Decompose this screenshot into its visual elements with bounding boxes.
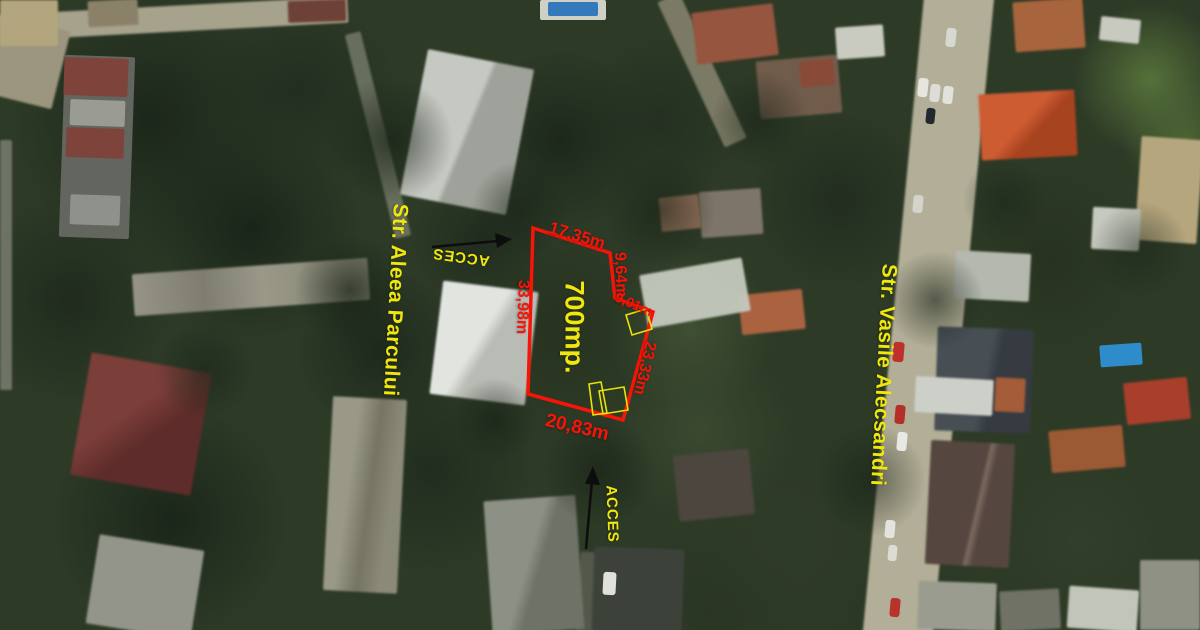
access-label-bottom: ACCES (603, 485, 622, 543)
satellite-map: Str. Aleea Parcului Str. Vasile Alecsand… (0, 0, 1200, 630)
building-outline (589, 382, 607, 415)
building-outline (599, 387, 628, 414)
access-arrow-bottom-head (585, 466, 600, 485)
annotation-layer (0, 0, 1200, 630)
plot-area-label: 700mp. (559, 280, 590, 373)
access-arrow-top-head (495, 233, 512, 248)
access-arrow-bottom-shaft (586, 480, 592, 549)
dimension-label-left: 33,98m (512, 280, 532, 335)
